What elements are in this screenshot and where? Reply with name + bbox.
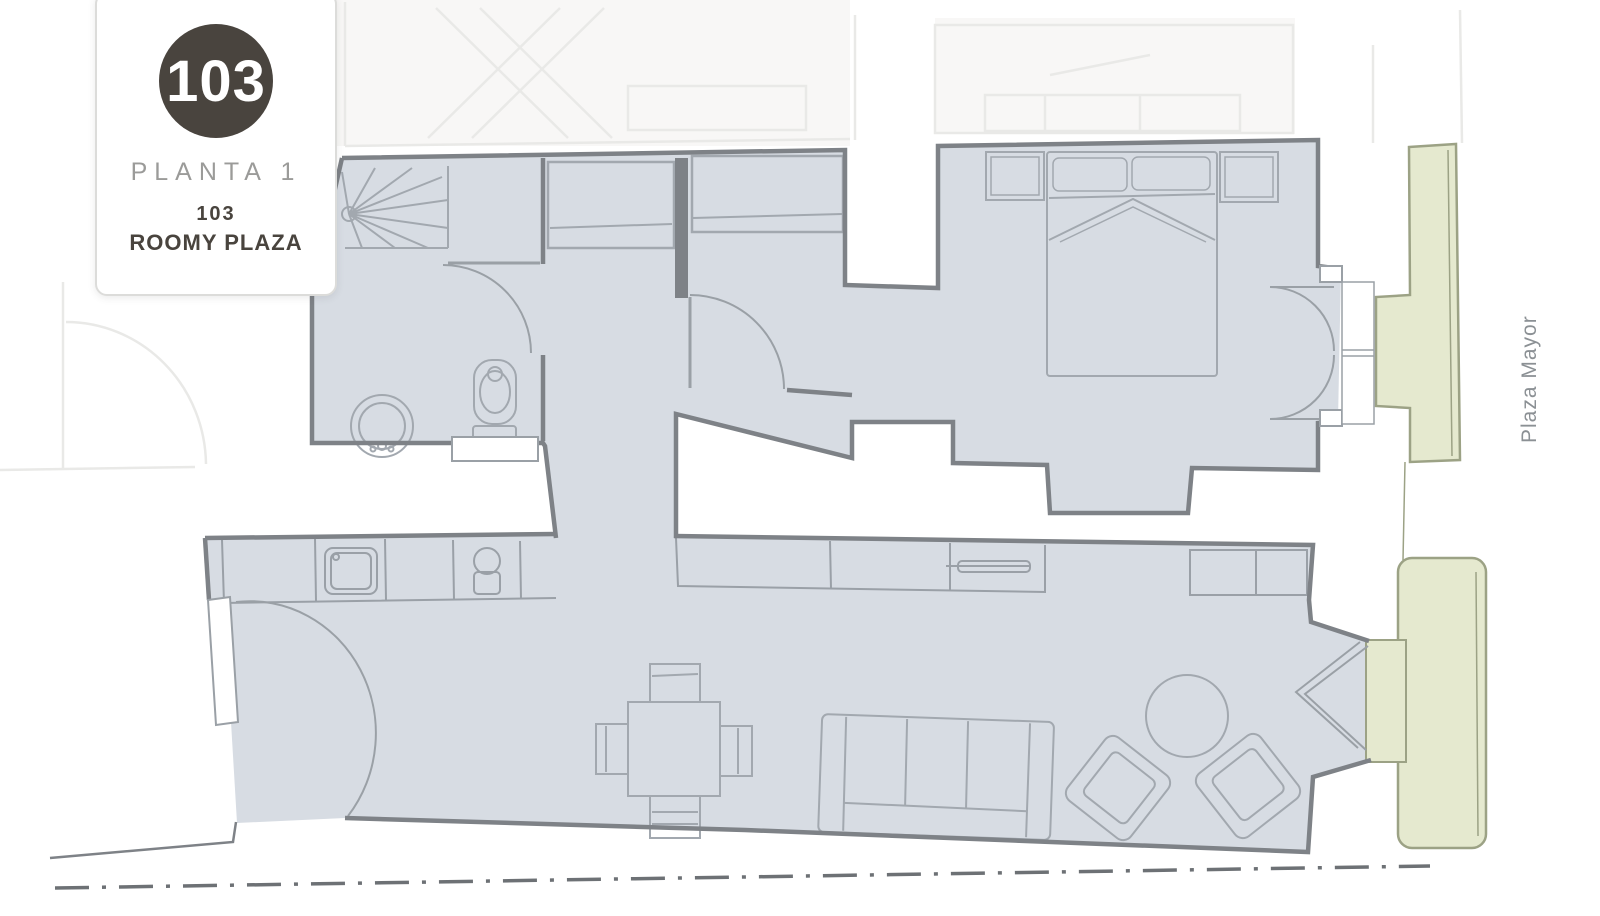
- balcony-living: [1398, 558, 1486, 848]
- neighbor-door-arc: [66, 322, 206, 464]
- counter-separator: [830, 541, 831, 589]
- neighbor-wall: [1460, 10, 1462, 143]
- unit-card: 103 PLANTA 1 103 ROOMY PLAZA: [95, 0, 337, 296]
- floorplan-page: 103 PLANTA 1 103 ROOMY PLAZA Plaza Mayor: [0, 0, 1600, 916]
- balcony-living-door-landing: [1366, 640, 1406, 762]
- neighbor-wall: [0, 467, 195, 470]
- floor-living-kitchen: [205, 524, 1371, 852]
- floor-label: PLANTA 1: [97, 158, 335, 187]
- unit-number-text: 103: [97, 203, 335, 226]
- counter-separator: [520, 541, 521, 599]
- wall-facade-step: [50, 822, 236, 858]
- unit-number-badge: 103: [159, 24, 273, 138]
- apartment-floor: [205, 140, 1371, 852]
- street-label: Plaza Mayor: [1518, 315, 1542, 443]
- unit-name-text: ROOMY PLAZA: [97, 230, 335, 256]
- wall-closet-divider: [675, 158, 688, 298]
- counter-separator: [385, 539, 386, 600]
- bathroom-niche: [452, 437, 538, 461]
- neighbor-faint-fills: [330, 0, 1295, 146]
- building-edge-line: [1403, 462, 1405, 560]
- floor-upper-rooms: [312, 140, 1341, 540]
- balcony-bedroom: [1376, 144, 1460, 462]
- bedroom-balcony-sill: [1342, 282, 1374, 424]
- french-door-jamb-top: [1320, 266, 1342, 282]
- balconies: [1366, 144, 1486, 848]
- boundary-dashdot-line: [55, 866, 1430, 888]
- counter-separator: [453, 540, 454, 600]
- french-door-jamb-bottom: [1320, 410, 1342, 426]
- unit-number-badge-text: 103: [166, 48, 266, 115]
- counter-separator: [315, 538, 316, 601]
